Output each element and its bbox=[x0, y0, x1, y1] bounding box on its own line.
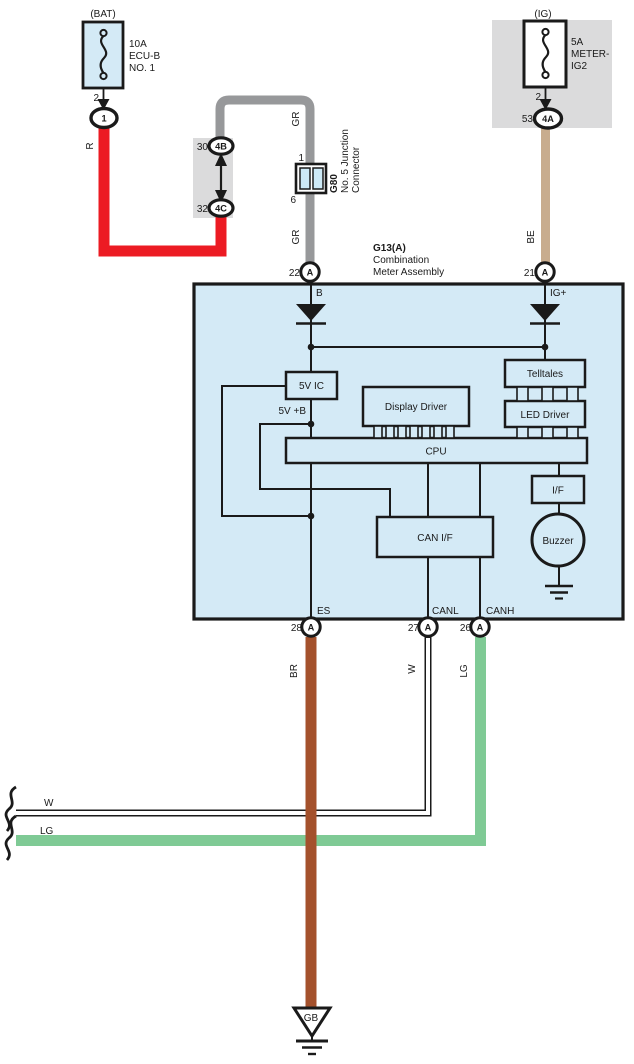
meter-pin28: 28 bbox=[291, 623, 303, 634]
pin-letter: A bbox=[307, 267, 314, 277]
pin-letter: A bbox=[308, 622, 315, 632]
meter-name: Combination bbox=[373, 255, 429, 266]
bat-fuse-label: 10A bbox=[129, 39, 147, 50]
label-buzzer: Buzzer bbox=[542, 536, 574, 547]
ground-icon bbox=[296, 1041, 328, 1054]
label-can-if: CAN I/F bbox=[417, 533, 453, 544]
g80-desc: Connector bbox=[351, 146, 362, 193]
ig-pin53: 53 bbox=[522, 114, 534, 125]
ground-label-gb: GB bbox=[304, 1013, 319, 1024]
bat-fuse-label: NO. 1 bbox=[129, 63, 156, 74]
stub-label-lg: LG bbox=[40, 826, 54, 837]
label-telltales: Telltales bbox=[527, 369, 563, 380]
junction4-oval-4c: 4C bbox=[215, 203, 227, 213]
label-5v-ic: 5V IC bbox=[299, 381, 324, 392]
bat-oval-label: 1 bbox=[101, 114, 106, 124]
bat-pin-number: 2 bbox=[93, 93, 99, 104]
wire-w-white bbox=[16, 637, 428, 813]
junction4-pin30: 30 bbox=[197, 142, 209, 153]
junction-dot bbox=[542, 344, 549, 351]
net-label-ig: IG+ bbox=[550, 288, 567, 299]
wire-code-gr-bottom: GR bbox=[291, 230, 302, 245]
g80-code: G80 bbox=[329, 174, 340, 193]
label-display-driver: Display Driver bbox=[385, 402, 448, 413]
junction-dot bbox=[308, 344, 315, 351]
wire-code-lg: LG bbox=[459, 664, 470, 678]
net-label-b: B bbox=[316, 288, 323, 299]
wire-code-be: BE bbox=[526, 230, 537, 244]
wire-code-w: W bbox=[407, 664, 418, 674]
junction4-pin32: 32 bbox=[197, 204, 209, 215]
wiring-diagram: (BAT) 10A ECU-B NO. 1 2 1 R 30 4B 32 4C … bbox=[0, 0, 634, 1064]
label-if: I/F bbox=[552, 486, 564, 497]
bus-pins bbox=[374, 426, 454, 438]
ig-header: (IG) bbox=[534, 9, 551, 20]
ig-fuse-label: IG2 bbox=[571, 61, 588, 72]
junction-dot bbox=[308, 513, 315, 520]
g80-pin6: 6 bbox=[290, 195, 296, 206]
pin-letter: A bbox=[425, 622, 432, 632]
meter-pin22: 22 bbox=[289, 268, 301, 279]
net-label-canl: CANL bbox=[432, 606, 459, 617]
wire-code-gr-top: GR bbox=[291, 112, 302, 127]
meter-name: Meter Assembly bbox=[373, 267, 444, 278]
meter-pin21: 21 bbox=[524, 268, 536, 279]
label-led-driver: LED Driver bbox=[521, 410, 571, 421]
net-label-5vb: 5V +B bbox=[278, 406, 306, 417]
meter-pin27: 27 bbox=[408, 623, 420, 634]
wiring-diagram-page: (BAT) 10A ECU-B NO. 1 2 1 R 30 4B 32 4C … bbox=[0, 0, 634, 1064]
g80-pin1: 1 bbox=[298, 153, 304, 164]
net-label-es: ES bbox=[317, 606, 331, 617]
bat-fuse-label: ECU-B bbox=[129, 51, 160, 62]
ig-pin-number: 2 bbox=[535, 92, 541, 103]
bat-header: (BAT) bbox=[90, 9, 115, 20]
bat-fuse bbox=[83, 22, 123, 110]
pin-letter: A bbox=[542, 267, 549, 277]
junction-dot bbox=[308, 421, 315, 428]
meter-code: G13(A) bbox=[373, 243, 406, 254]
net-label-canh: CANH bbox=[486, 606, 514, 617]
label-cpu: CPU bbox=[425, 447, 446, 458]
junction4-oval-4b: 4B bbox=[215, 141, 227, 151]
meter-pin26: 26 bbox=[460, 623, 472, 634]
stub-label-w: W bbox=[44, 798, 54, 809]
wire-code-br: BR bbox=[289, 664, 300, 678]
g80-desc: No. 5 Junction bbox=[340, 129, 351, 193]
g80-junction-connector bbox=[296, 164, 326, 193]
wire-code-r: R bbox=[85, 142, 96, 149]
ig-fuse-label: METER- bbox=[571, 49, 609, 60]
ig-oval-label: 4A bbox=[542, 114, 554, 124]
pin-letter: A bbox=[477, 622, 484, 632]
ig-fuse-label: 5A bbox=[571, 37, 584, 48]
